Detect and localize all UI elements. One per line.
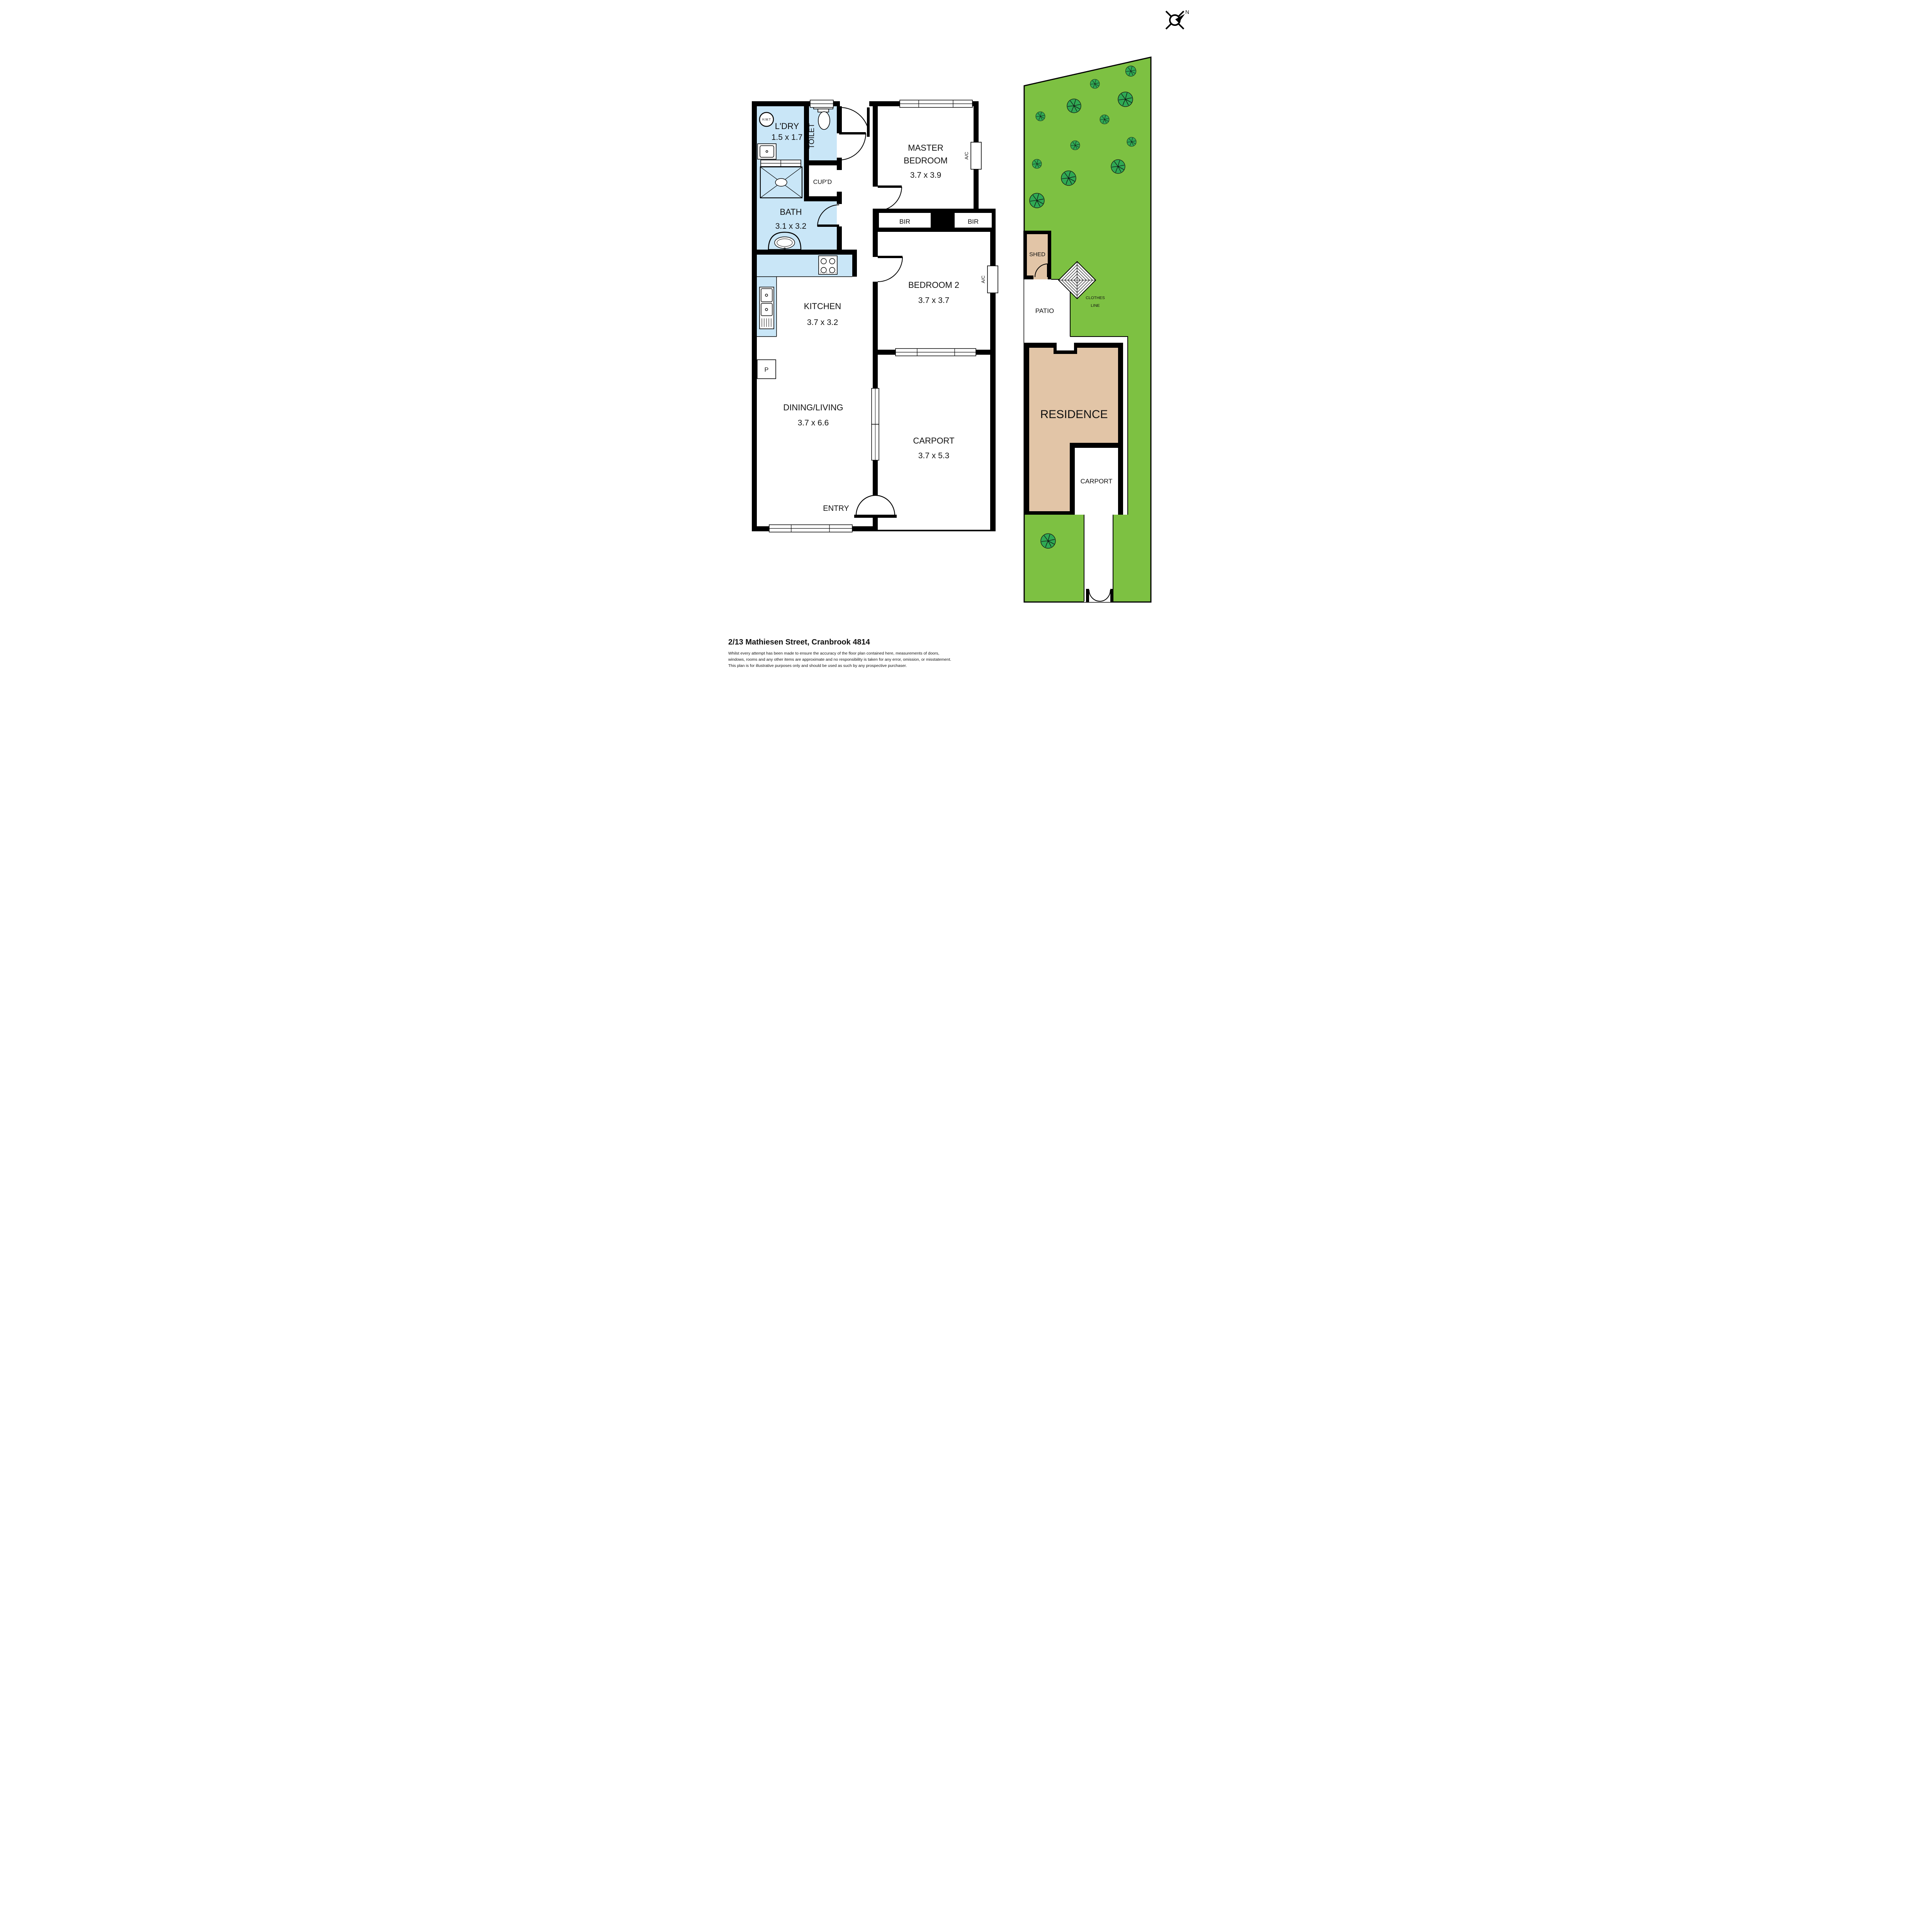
wall-right-lower xyxy=(990,209,996,531)
residence: RESIDENCE CARPORT xyxy=(1024,343,1123,515)
walkway-side xyxy=(1123,343,1128,515)
ac-bedroom2-label: A/C xyxy=(981,276,986,283)
disclaimer-line-2: windows, rooms and any other items are a… xyxy=(728,657,951,662)
tree-icon xyxy=(1030,193,1044,208)
wall-center-1 xyxy=(873,106,878,187)
residence-label: RESIDENCE xyxy=(1040,408,1108,421)
bir-left-label: BIR xyxy=(899,218,910,225)
address-title: 2/13 Mathiesen Street, Cranbrook 4814 xyxy=(728,638,870,646)
tree-icon xyxy=(1118,92,1133,107)
master-dims: 3.7 x 3.9 xyxy=(910,171,942,180)
compass-north-label: N xyxy=(1185,9,1189,15)
clothes-line-label-1: CLOTHES xyxy=(1086,296,1105,300)
site-carport-top-wall xyxy=(1070,443,1123,448)
tree-icon xyxy=(1090,79,1100,88)
bath-label: BATH xyxy=(780,207,802,217)
site-carport-label: CARPORT xyxy=(1081,478,1113,485)
shed-door-opening xyxy=(1033,275,1048,279)
clothes-line-label-2: LINE xyxy=(1091,303,1100,308)
kitchen-bench-top xyxy=(757,255,852,277)
wall-left xyxy=(752,101,757,531)
tree-icon xyxy=(1032,159,1042,168)
floor-plan-canvas: N H.W.T xyxy=(719,0,1198,678)
kitchen-label: KITCHEN xyxy=(804,301,841,311)
laundry-bench-icon xyxy=(761,160,801,167)
site-carport-left-wall xyxy=(1070,443,1075,515)
site-plan: SHED CLOTHES LINE RESIDENCE CARPORT xyxy=(1023,57,1151,602)
bedroom2-window xyxy=(896,349,976,356)
tree-icon xyxy=(1126,66,1136,77)
floor-plan-page: N H.W.T xyxy=(719,0,1198,678)
carport-dims: 3.7 x 5.3 xyxy=(918,451,950,460)
kitchen-dims: 3.7 x 3.2 xyxy=(807,318,838,327)
floor-plan: H.W.T xyxy=(752,100,998,532)
ac-master-label: A/C xyxy=(964,152,969,160)
bedroom2-door xyxy=(878,256,902,282)
tree-icon xyxy=(1071,141,1080,150)
master-label-line1: MASTER xyxy=(908,143,943,153)
stove-icon xyxy=(819,256,837,274)
bath-dims: 3.1 x 3.2 xyxy=(775,222,807,231)
ac-unit-bedroom2: A/C xyxy=(981,266,998,293)
residence-entry-notch xyxy=(1057,343,1074,350)
wall-cupboard-bottom xyxy=(804,196,842,201)
wall-center-4 xyxy=(873,460,878,496)
wall-wet-1 xyxy=(837,106,842,133)
tree-icon xyxy=(1100,115,1109,124)
disclaimer-line-1: Whilst every attempt has been made to en… xyxy=(728,651,939,656)
hot-water-label: H.W.T xyxy=(762,118,771,121)
wall-kitchen-stub xyxy=(852,250,857,277)
wall-cupboard-left xyxy=(804,160,809,201)
carport-open-edge xyxy=(878,530,990,531)
tree-icon xyxy=(1041,534,1055,548)
bedroom2-label: BEDROOM 2 xyxy=(908,280,959,290)
tree-icon xyxy=(1036,112,1045,121)
pantry-box: P xyxy=(757,360,776,379)
master-door xyxy=(878,185,902,211)
tree-icon xyxy=(1111,160,1125,173)
sliding-door xyxy=(872,388,879,460)
wall-wet-3 xyxy=(837,192,842,204)
bir-right-label: BIR xyxy=(968,218,979,225)
bedroom2-dims: 3.7 x 3.7 xyxy=(918,296,950,305)
tree-icon xyxy=(1067,99,1081,113)
laundry-tub-icon xyxy=(758,144,776,159)
entry-label: ENTRY xyxy=(823,504,849,513)
cupboard-label: CUP'D xyxy=(813,179,832,185)
wall-toilet-bottom xyxy=(804,160,842,165)
laundry-dims: 1.5 x 1.7 xyxy=(772,133,803,142)
driveway xyxy=(1084,514,1113,602)
carport-label: CARPORT xyxy=(913,436,954,446)
tree-icon xyxy=(1061,171,1076,185)
toilet-door xyxy=(839,132,866,160)
disclaimer-line-3: This plan is for illustrative purposes o… xyxy=(728,663,907,668)
master-label-line2: BEDROOM xyxy=(904,156,948,165)
laundry-label: L'DRY xyxy=(775,121,799,131)
patio-label: PATIO xyxy=(1035,307,1054,315)
master-window xyxy=(900,100,972,107)
wall-bath-kitchen xyxy=(752,250,857,255)
wall-center-3 xyxy=(873,282,878,388)
wall-wet-2 xyxy=(837,158,842,170)
walkway-top xyxy=(1070,337,1128,343)
footer: 2/13 Mathiesen Street, Cranbrook 4814 Wh… xyxy=(728,638,951,668)
toilet-label: TOILET xyxy=(808,123,816,149)
living-window xyxy=(769,525,852,532)
compass-icon: N xyxy=(1166,9,1189,29)
dining-dims: 3.7 x 6.6 xyxy=(798,418,829,427)
shed-label: SHED xyxy=(1029,251,1045,258)
pantry-label: P xyxy=(765,367,769,373)
shed: SHED xyxy=(1023,231,1051,279)
toilet-window xyxy=(810,100,833,107)
dining-label: DINING/LIVING xyxy=(783,403,843,412)
entry-door xyxy=(854,495,897,518)
hot-water-tank-icon: H.W.T xyxy=(760,112,773,126)
ac-unit-master: A/C xyxy=(964,142,981,169)
tree-icon xyxy=(1127,137,1136,146)
kitchen-sink-icon xyxy=(760,287,774,329)
